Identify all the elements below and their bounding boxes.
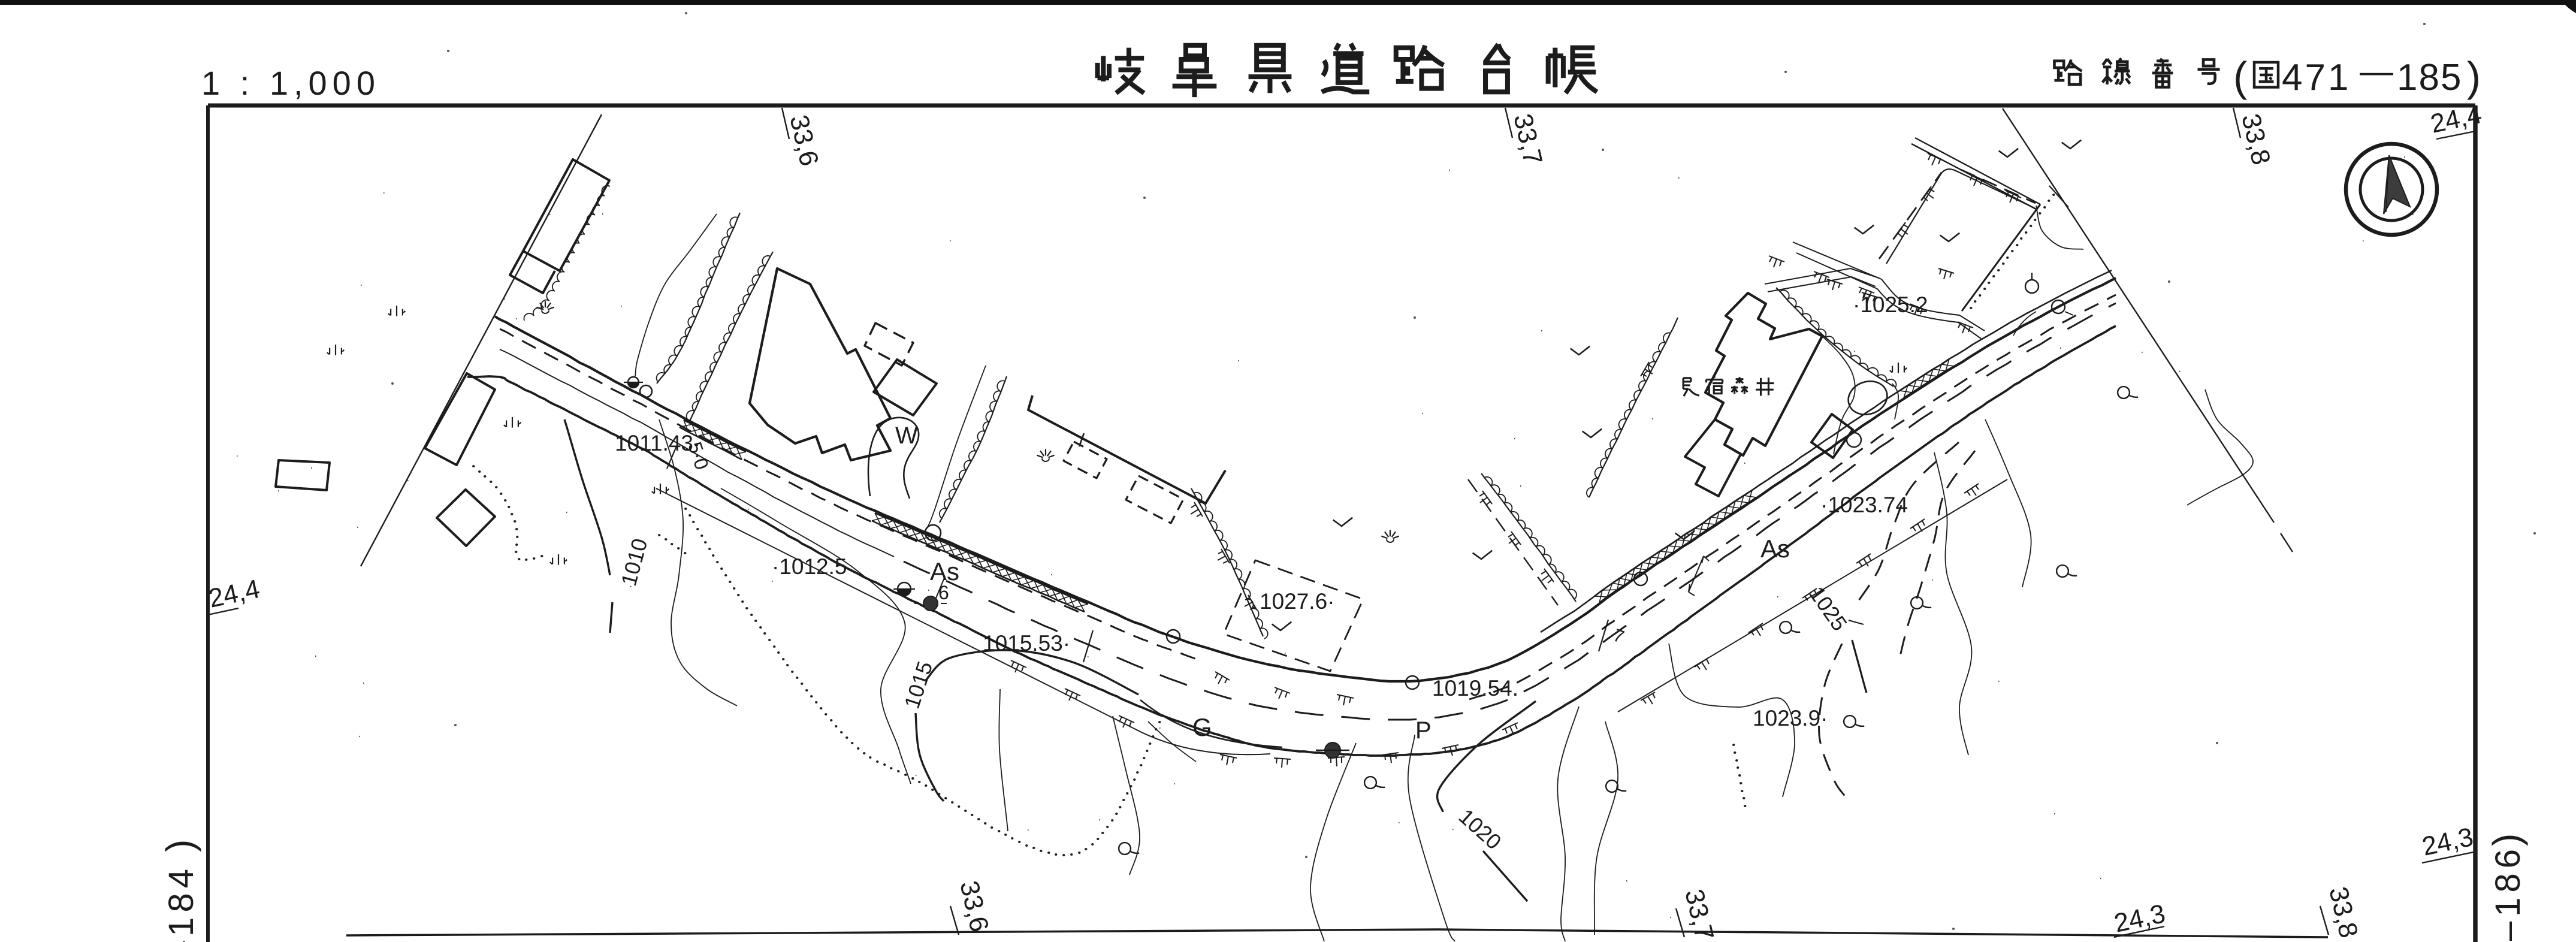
svg-text:1023.9·: 1023.9·	[1753, 706, 1828, 730]
svg-text:1011.43·: 1011.43·	[615, 431, 700, 455]
svg-text:): )	[2485, 834, 2528, 846]
svg-text:(: (	[2233, 53, 2247, 100]
svg-text:1027.6·: 1027.6·	[1260, 589, 1335, 614]
svg-text:–184: –184	[162, 864, 201, 942]
svg-text:1019.54.: 1019.54.	[1432, 676, 1518, 701]
svg-text:As: As	[930, 557, 959, 585]
svg-text:G: G	[1192, 713, 1212, 741]
svg-text:·1012.5: ·1012.5	[772, 554, 847, 579]
svg-text:W: W	[895, 422, 918, 449]
svg-text:·1023.74: ·1023.74	[1820, 493, 1908, 517]
svg-text:As: As	[1760, 535, 1790, 563]
svg-text:): )	[2467, 53, 2481, 100]
svg-text:P: P	[1415, 717, 1432, 744]
svg-text:471: 471	[2282, 57, 2351, 98]
svg-text:1 : 1,000: 1 : 1,000	[201, 64, 380, 102]
svg-text:–186: –186	[2489, 844, 2527, 941]
svg-text:): )	[158, 840, 201, 852]
svg-text:—: —	[2360, 52, 2393, 90]
svg-text:185: 185	[2397, 57, 2462, 98]
